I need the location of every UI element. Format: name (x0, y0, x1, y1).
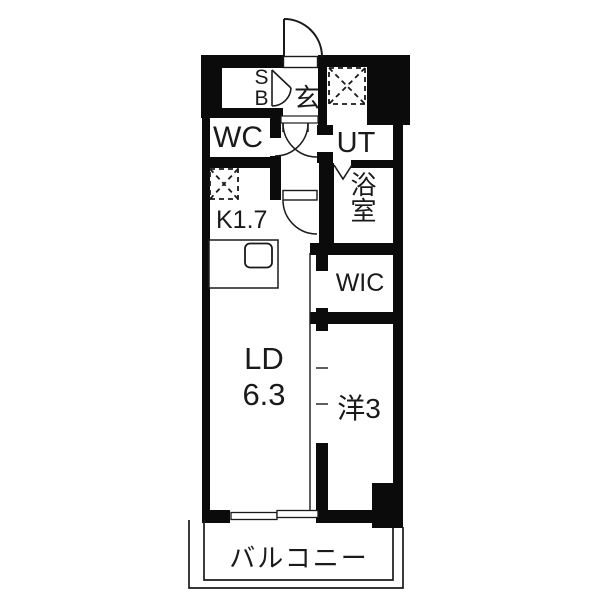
sliding-window-icon (231, 511, 318, 520)
kitchen-door-leaf (283, 191, 317, 201)
shoe-box-folding-door-icon (272, 70, 291, 106)
genkan-step (281, 116, 318, 123)
room-label-shoe-box: SB (249, 66, 273, 110)
room-label-wic: WIC (328, 269, 392, 298)
room-label-balcony: バルコニー (204, 538, 394, 575)
hall-door-swing-icons (275, 123, 317, 157)
washing-machine-space-icon (329, 68, 365, 104)
room-label-ld-size: 6.3 (222, 377, 306, 413)
room-label-wc: WC (206, 121, 270, 155)
floor-plan: SB 玄 WC UT 浴室 K1.7 WIC LD 6.3 洋3 バルコニー (0, 0, 600, 600)
refrigerator-space-icon (210, 169, 238, 199)
kitchen-door-swing-icon (283, 200, 317, 234)
kitchen-counter-sink-icon (209, 240, 278, 288)
sliding-partition-icon (310, 253, 328, 510)
room-label-kitchen: K1.7 (216, 206, 267, 235)
room-label-bathroom: 浴室 (344, 171, 381, 241)
room-label-entrance: 玄 (294, 78, 320, 115)
entrance-door-swing-icon (284, 19, 322, 57)
room-label-ld: LD (222, 341, 306, 377)
entrance-threshold (284, 57, 318, 68)
room-label-living-dining: LD 6.3 (222, 341, 306, 413)
room-label-utility: UT (326, 127, 386, 160)
room-label-western-room: 洋3 (326, 387, 392, 427)
